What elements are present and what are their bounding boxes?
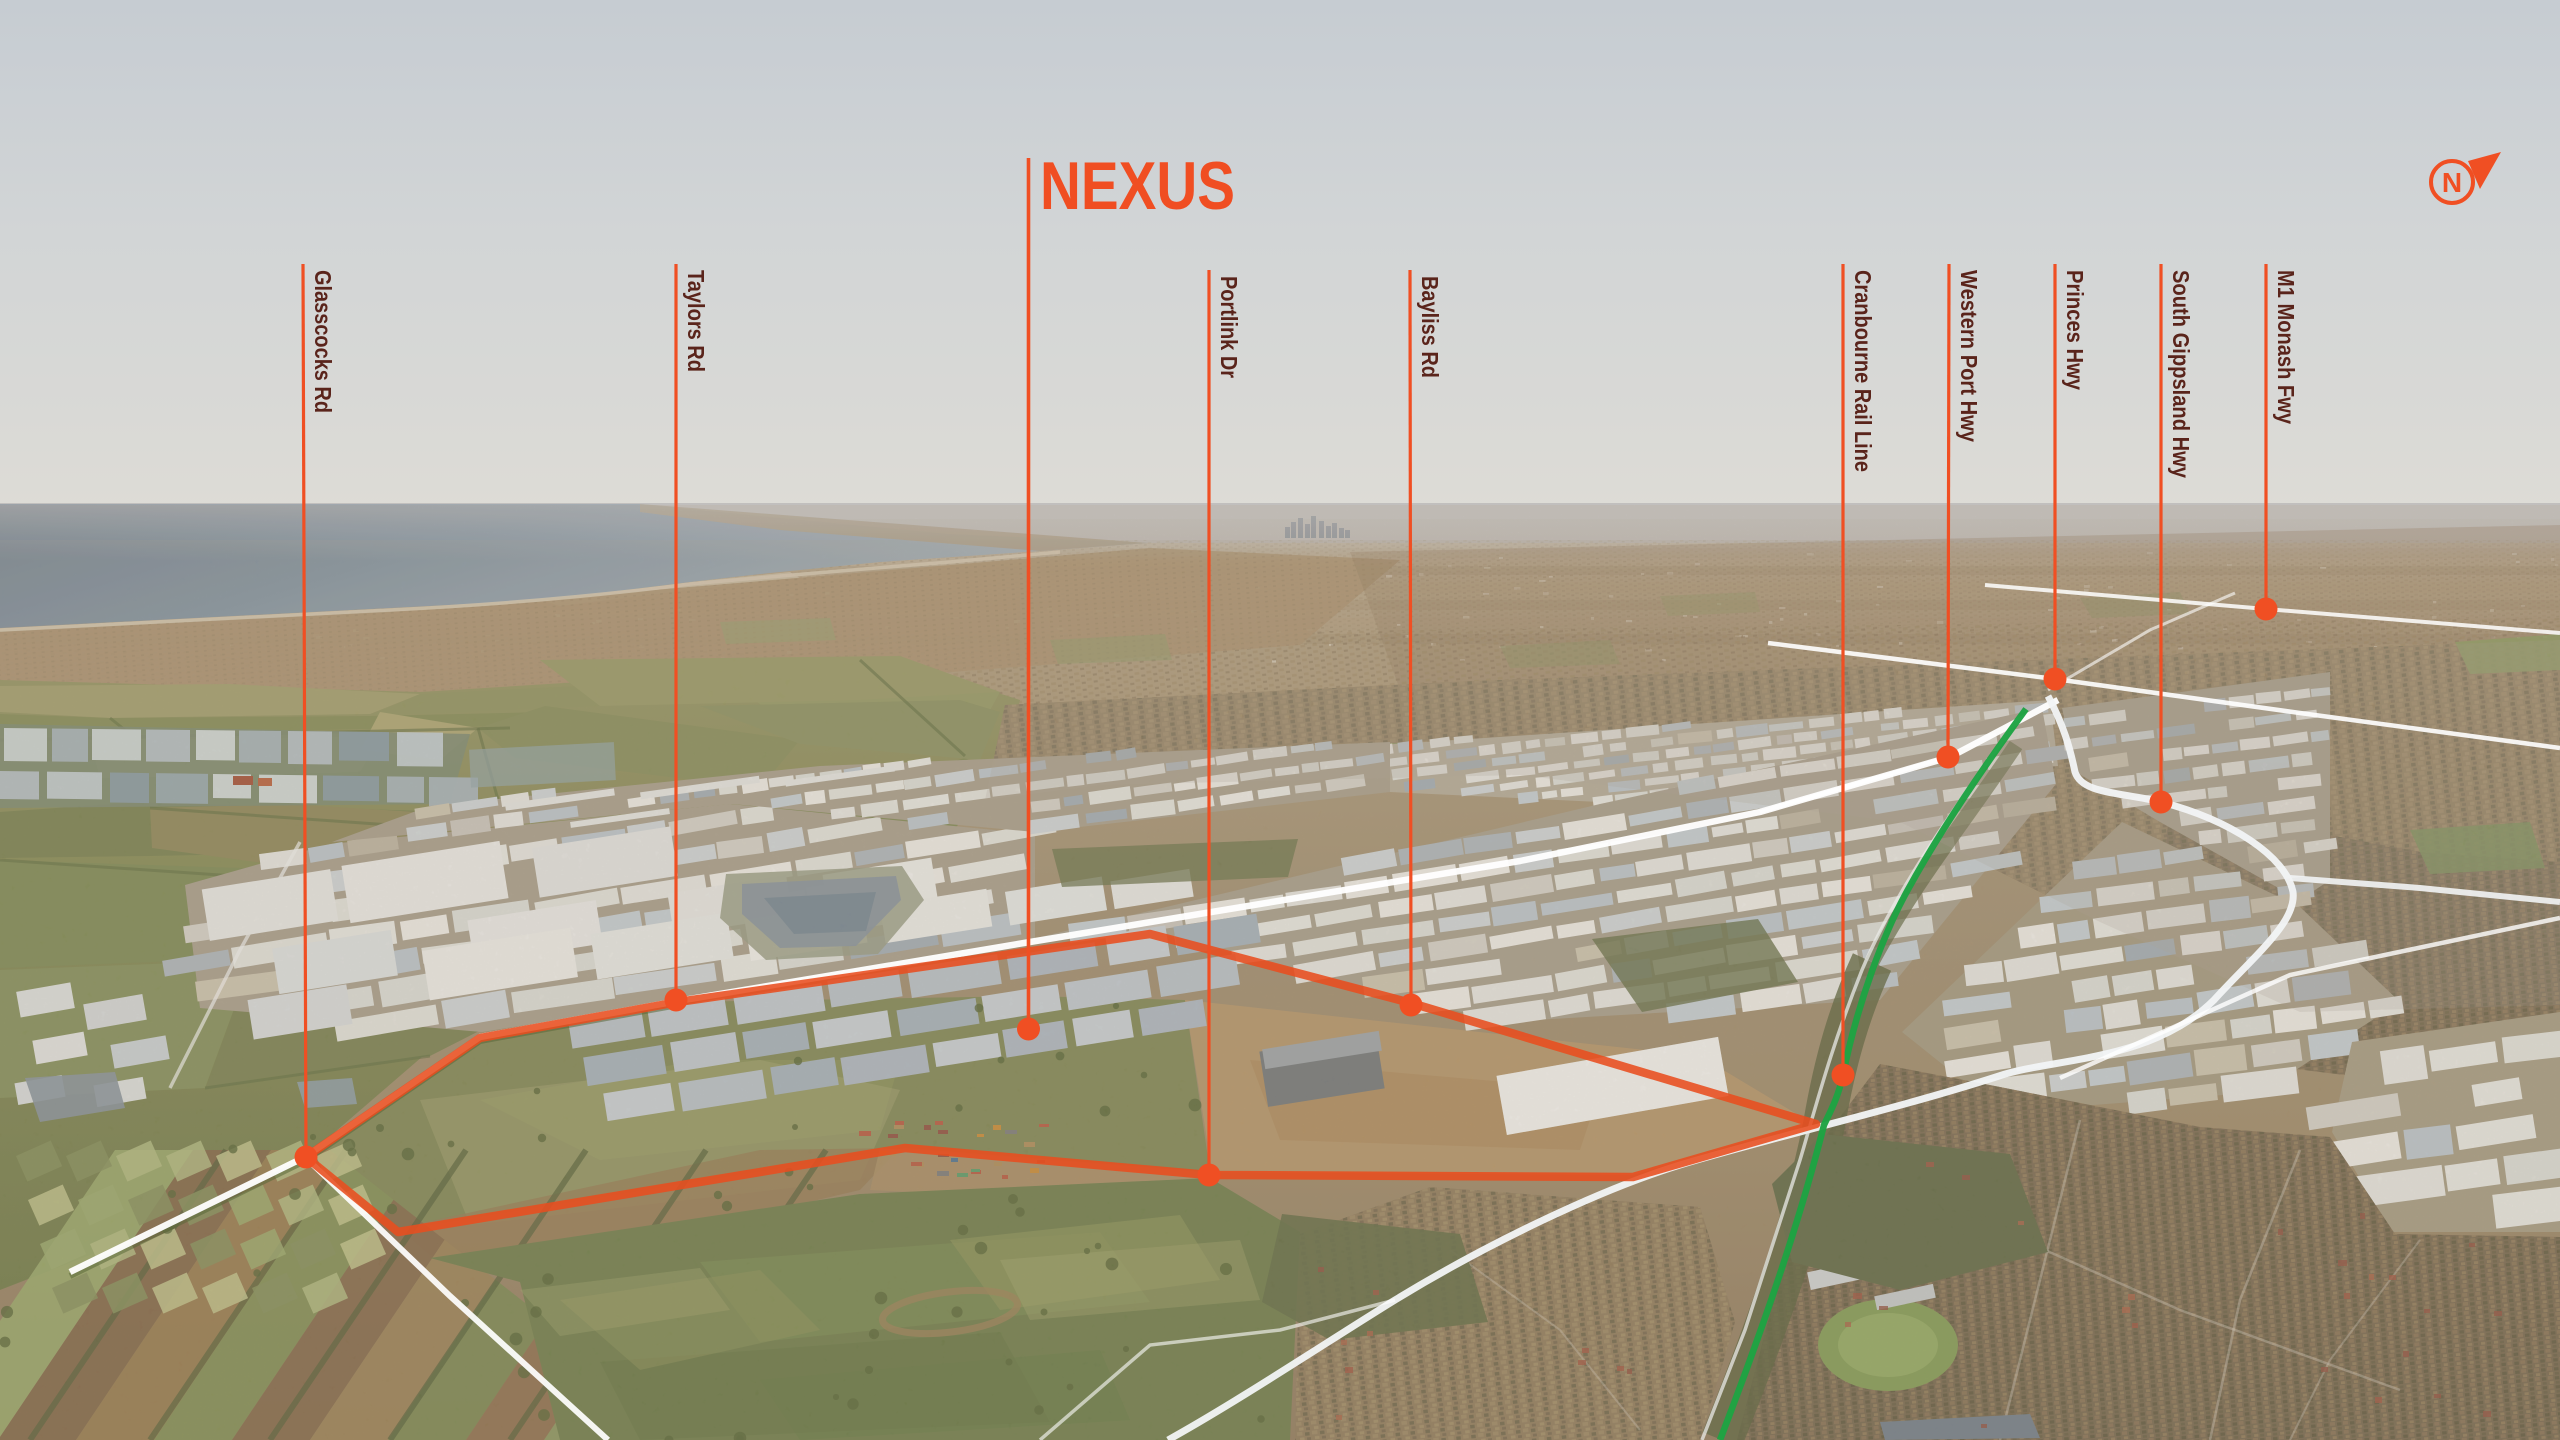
svg-text:M1 Monash Fwy: M1 Monash Fwy [2273, 270, 2299, 424]
svg-text:Princes Hwy: Princes Hwy [2062, 270, 2088, 390]
svg-text:Portlink Dr: Portlink Dr [1216, 276, 1242, 378]
svg-text:Bayliss Rd: Bayliss Rd [1417, 276, 1443, 378]
svg-text:Cranbourne Rail Line: Cranbourne Rail Line [1850, 270, 1876, 472]
svg-text:South Gippsland Hwy: South Gippsland Hwy [2168, 270, 2194, 478]
svg-text:Western Port Hwy: Western Port Hwy [1956, 270, 1982, 442]
svg-text:N: N [2442, 167, 2462, 198]
svg-text:Taylors Rd: Taylors Rd [683, 270, 709, 372]
svg-text:Glasscocks Rd: Glasscocks Rd [310, 270, 336, 413]
svg-text:NEXUS: NEXUS [1040, 148, 1235, 224]
